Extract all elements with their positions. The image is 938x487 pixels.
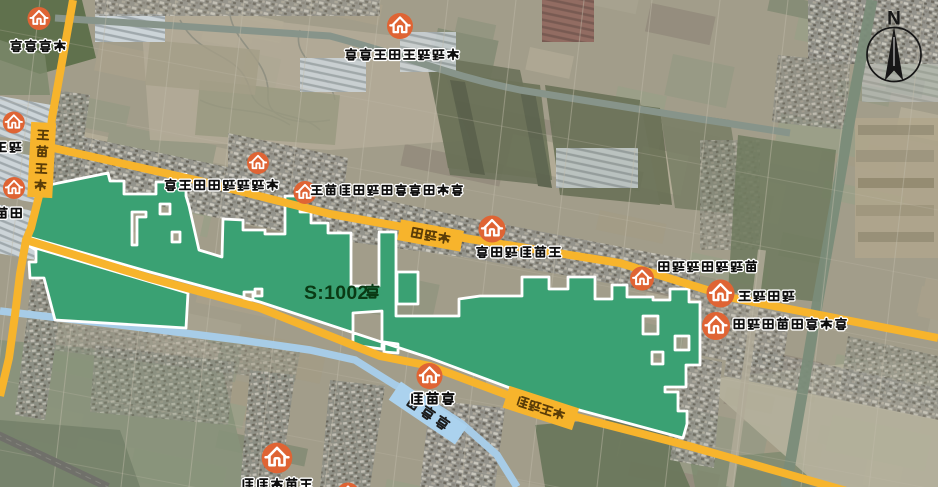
svg-text:N: N	[887, 9, 901, 30]
svg-text:S:1002: S:1002	[304, 282, 369, 304]
